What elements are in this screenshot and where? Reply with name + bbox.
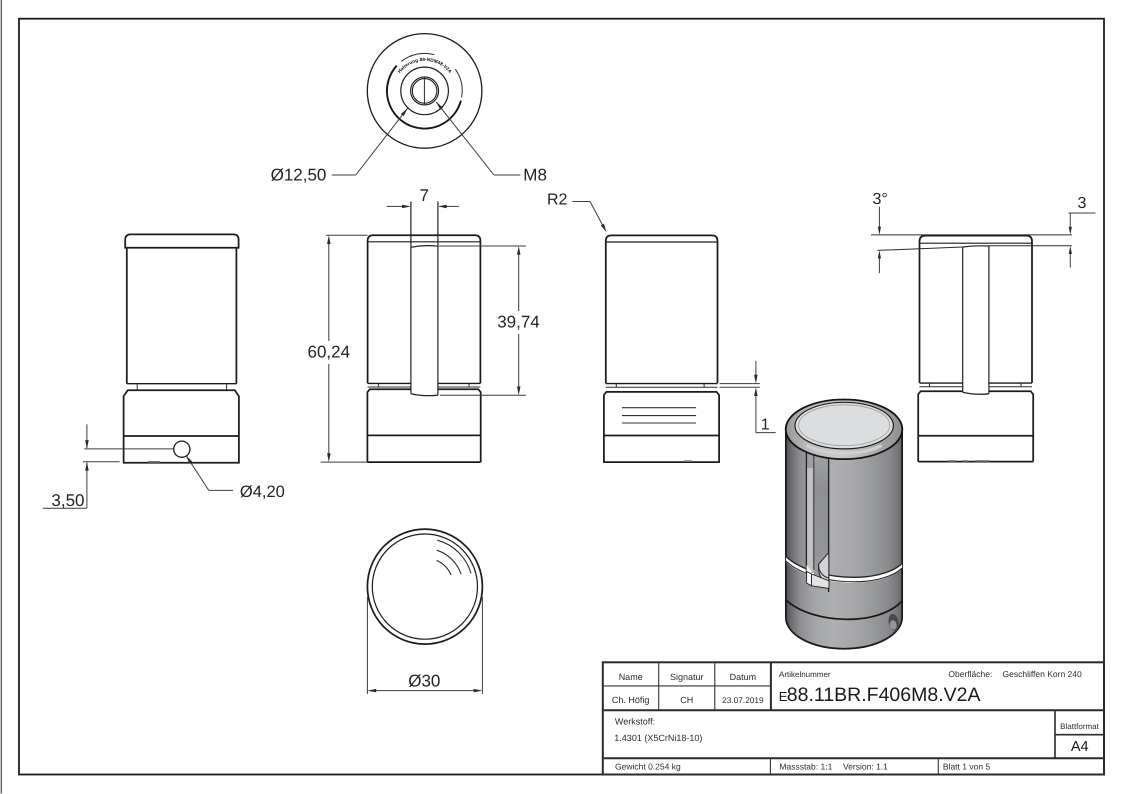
svg-text:Oberfläche:: Oberfläche:	[948, 669, 992, 679]
svg-text:Blattformat: Blattformat	[1060, 722, 1099, 731]
svg-text:Ø4,20: Ø4,20	[240, 483, 285, 501]
svg-text:Ø12,50: Ø12,50	[271, 166, 327, 185]
svg-text:39,74: 39,74	[497, 313, 540, 332]
svg-text:M8: M8	[523, 166, 547, 185]
svg-text:Blatt 1 von 5: Blatt 1 von 5	[943, 761, 991, 771]
svg-text:3°: 3°	[873, 191, 888, 208]
svg-text:23.07.2019: 23.07.2019	[722, 695, 764, 705]
svg-text:1: 1	[761, 417, 770, 434]
svg-text:Geschliffen Korn 240: Geschliffen Korn 240	[1003, 669, 1082, 679]
svg-text:R2: R2	[547, 192, 568, 209]
svg-text:A4: A4	[1071, 739, 1089, 755]
svg-text:Name: Name	[619, 672, 643, 682]
svg-text:Datum: Datum	[730, 672, 757, 682]
svg-text:Ch. Höfig: Ch. Höfig	[612, 695, 650, 705]
svg-text:Gewicht 0.254 kg: Gewicht 0.254 kg	[615, 761, 681, 771]
svg-text:Signatur: Signatur	[670, 672, 704, 682]
svg-text:Werkstoff:: Werkstoff:	[615, 716, 655, 726]
svg-text:88.11BR.F406M8.V2A: 88.11BR.F406M8.V2A	[787, 684, 981, 706]
svg-text:Halterung 88-NDM48-V2A: Halterung 88-NDM48-V2A	[397, 57, 454, 74]
svg-text:60,24: 60,24	[308, 343, 351, 362]
svg-text:3: 3	[1078, 195, 1087, 212]
svg-text:Massstab: 1:1: Massstab: 1:1	[779, 761, 832, 771]
svg-text:1.4301 (X5CrNi18-10): 1.4301 (X5CrNi18-10)	[614, 733, 702, 743]
svg-text:Ø30: Ø30	[408, 672, 440, 691]
svg-text:Version: 1.1: Version: 1.1	[843, 761, 888, 771]
svg-text:Artikelnummer: Artikelnummer	[779, 670, 831, 679]
svg-text:3,50: 3,50	[51, 491, 84, 510]
svg-text:7: 7	[419, 186, 428, 205]
svg-text:CH: CH	[680, 695, 693, 705]
